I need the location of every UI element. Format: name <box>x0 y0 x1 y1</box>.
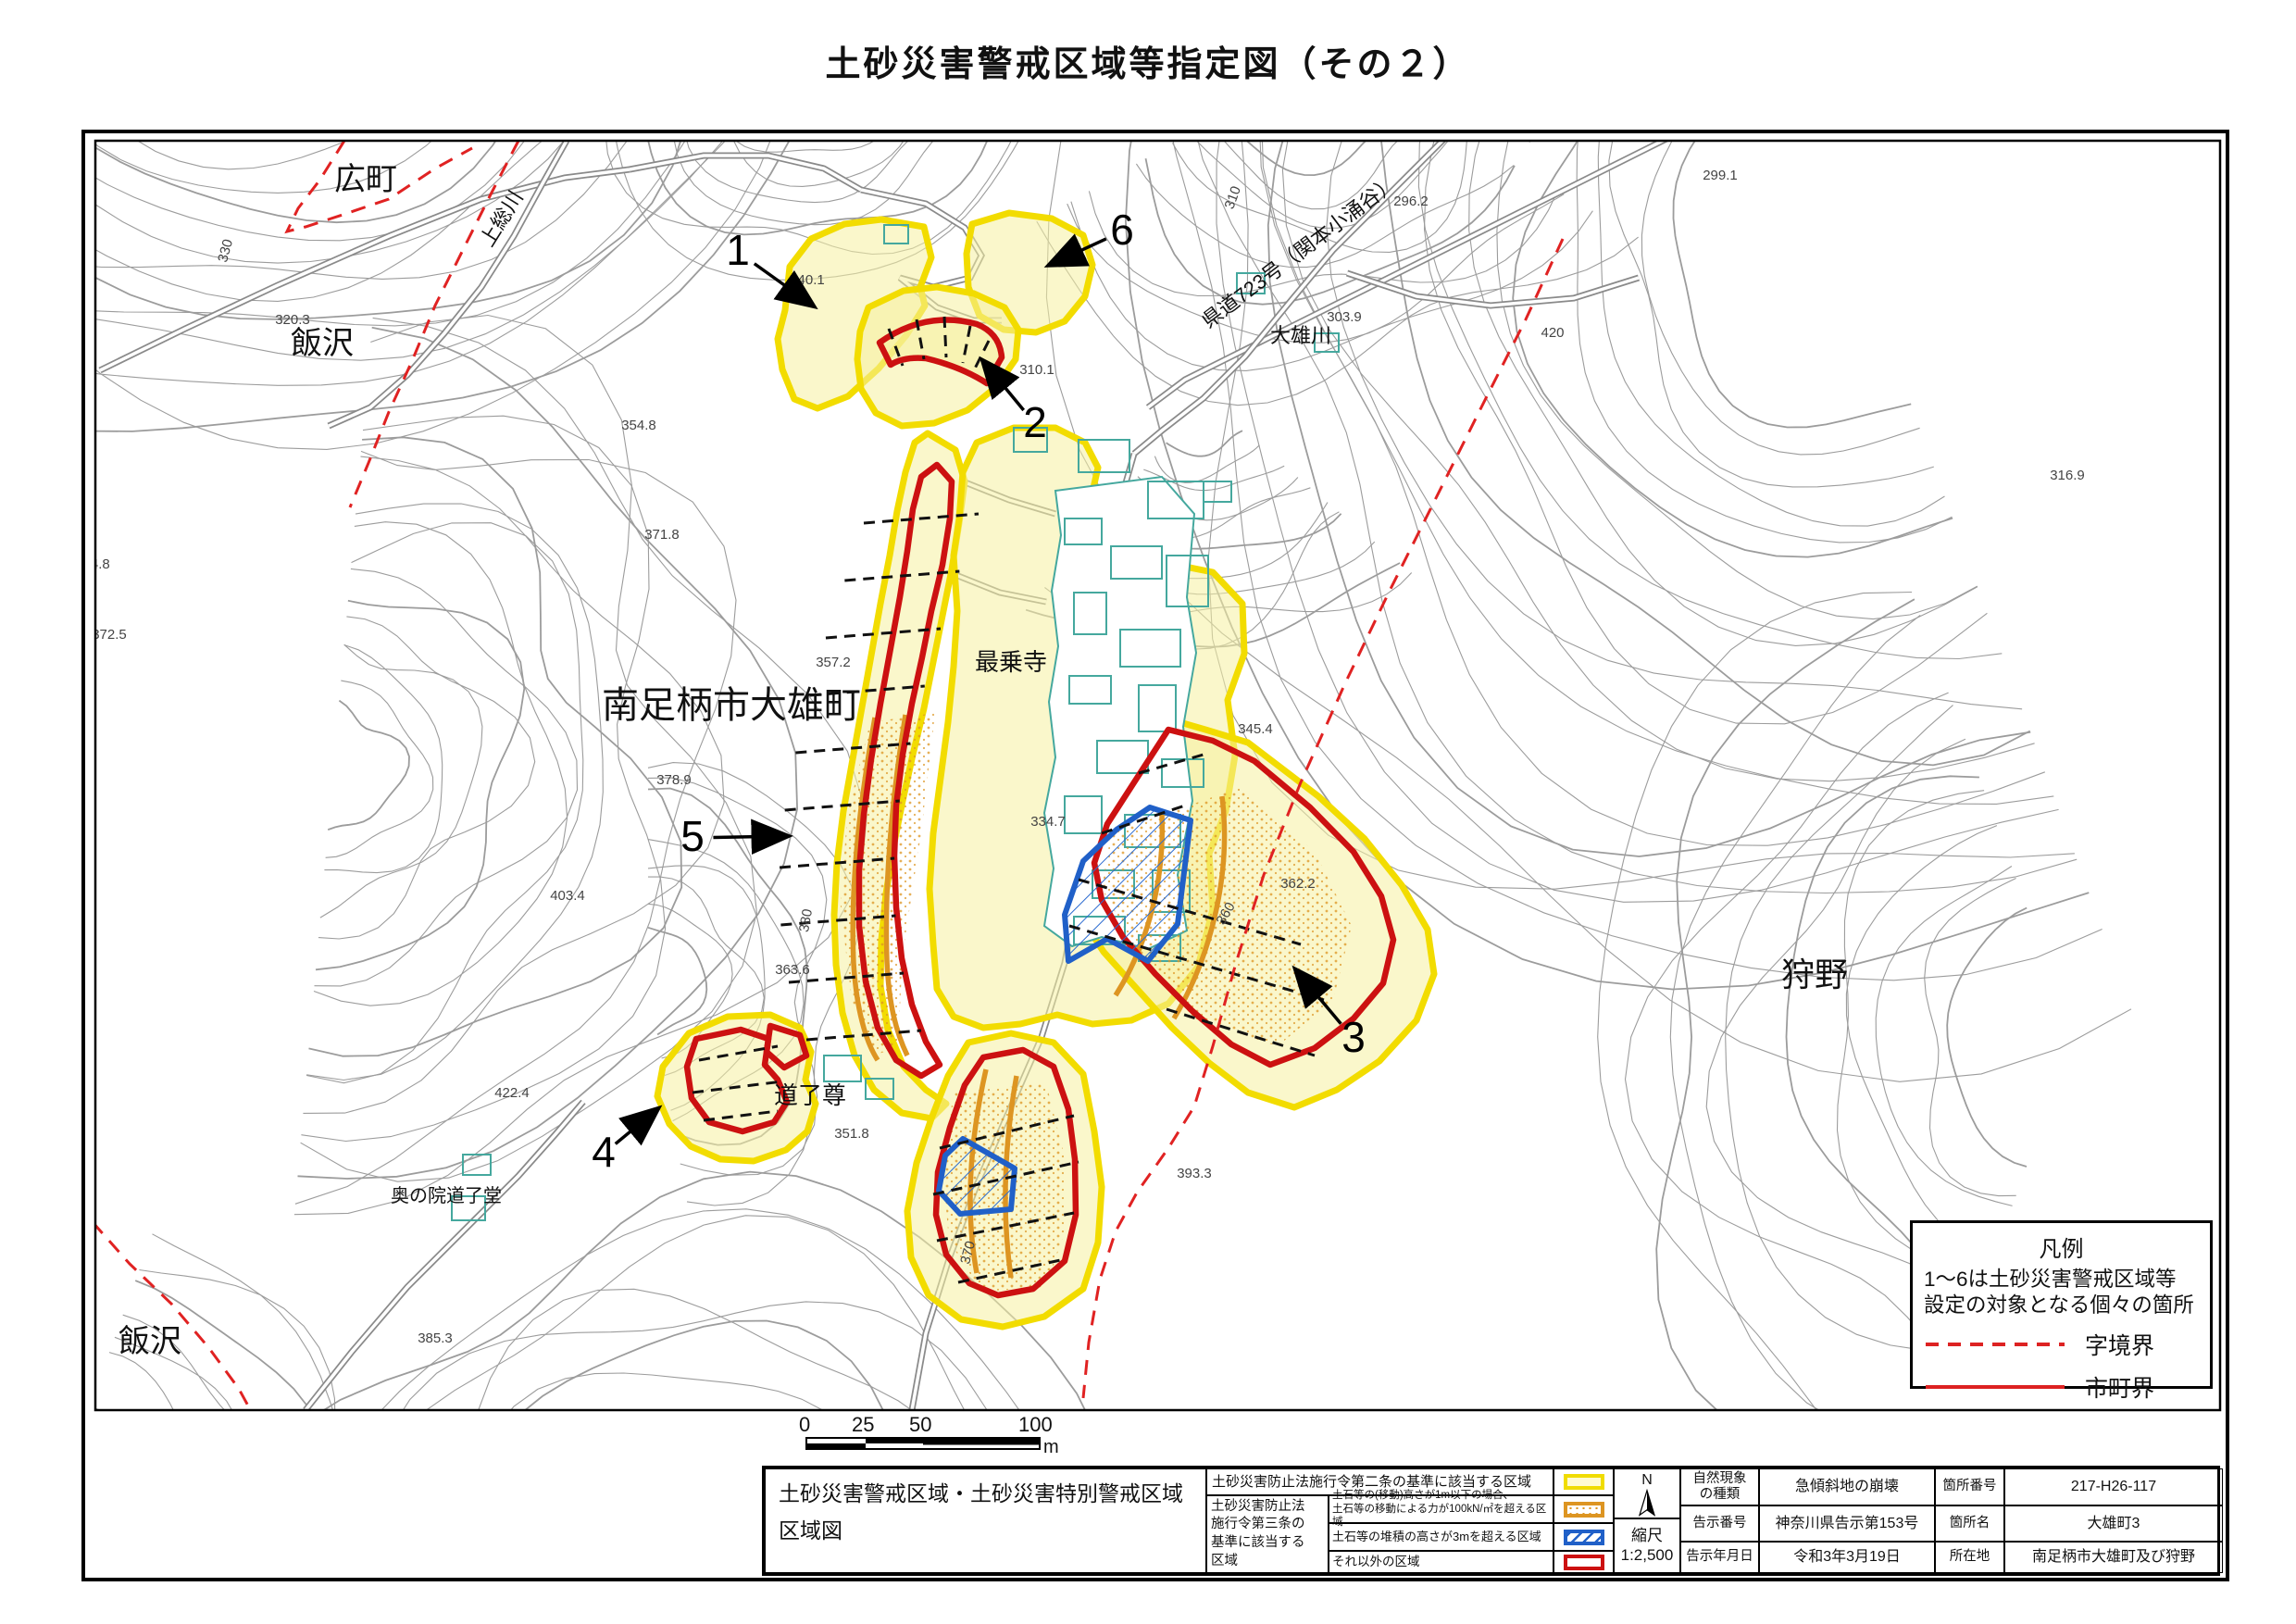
scale-bar: 0 25 50 100 m <box>792 1413 1088 1459</box>
legend-title: 凡例 <box>1913 1230 2210 1263</box>
scale-tick-0: 0 <box>799 1413 810 1437</box>
map-legend-box: 凡例 1～6は土砂災害警戒区域等 設定の対象となる個々の箇所 字境界 市町界 <box>1910 1220 2213 1389</box>
legend-item-shichokai: 市町界 <box>1926 1370 2197 1404</box>
swatch-yellow-zone <box>1554 1468 1614 1495</box>
scale-value: 1:2,500 <box>1621 1546 1674 1565</box>
sheet-info-table: 土砂災害警戒区域・土砂災害特別警戒区域 区域図 土砂災害防止法施行令第二条の基準… <box>762 1466 2220 1576</box>
swatch-orange-zone <box>1554 1495 1614 1523</box>
law3-row3-label: それ以外の区域 <box>1329 1551 1554 1573</box>
sheet-frame <box>81 130 2229 1581</box>
info-label-site-name: 箇所名 <box>1935 1505 2004 1542</box>
scale-tick-25: 25 <box>852 1413 874 1437</box>
north-arrow-icon <box>1631 1489 1663 1518</box>
legend-item-azakyokai: 字境界 <box>1926 1328 2197 1361</box>
info-value-notice-date: 令和3年3月19日 <box>1759 1542 1935 1573</box>
law3-row2-label: 土石等の堆積の高さが3mを超える区域 <box>1329 1523 1554 1551</box>
scale-unit: m <box>1043 1437 1059 1458</box>
elevation-label: 280 <box>1897 82 1920 98</box>
sheet-title: 土砂災害警戒区域・土砂災害特別警戒区域 区域図 <box>765 1468 1206 1573</box>
contour-line <box>68 0 501 112</box>
info-label-site-number: 箇所番号 <box>1935 1468 2004 1505</box>
contour-line <box>48 0 515 136</box>
scale-bar-graphic <box>805 1437 1041 1450</box>
contour-line <box>93 0 461 92</box>
scale-label: 縮尺 <box>1631 1527 1663 1545</box>
law3-header: 土砂災害防止法 施行令第三条の 基準に該当する 区域 <box>1206 1495 1329 1573</box>
scale-cell: 縮尺 1:2,500 <box>1614 1518 1680 1573</box>
swatch-red-zone <box>1554 1551 1614 1573</box>
north-label: N <box>1641 1471 1653 1489</box>
swatch-blue-zone <box>1554 1523 1614 1551</box>
elevation-label: 333.1 <box>1008 99 1043 115</box>
scale-tick-50: 50 <box>909 1413 931 1437</box>
elevation-label: 270 <box>2077 106 2100 122</box>
info-label-phenomenon: 自然現象 の種類 <box>1680 1468 1759 1505</box>
info-value-site-name: 大雄町3 <box>2004 1505 2223 1542</box>
legend-note: 1～6は土砂災害警戒区域等 設定の対象となる個々の箇所 <box>1924 1267 2201 1318</box>
dashed-line-sample <box>1926 1343 2065 1346</box>
info-label-notice-number: 告示番号 <box>1680 1505 1759 1542</box>
info-value-notice-number: 神奈川県告示第153号 <box>1759 1505 1935 1542</box>
info-label-location: 所在地 <box>1935 1542 2004 1573</box>
info-value-phenomenon: 急傾斜地の崩壊 <box>1759 1468 1935 1505</box>
solid-line-sample <box>1926 1385 2065 1389</box>
info-label-notice-date: 告示年月日 <box>1680 1542 1759 1573</box>
north-arrow-cell: N <box>1614 1468 1680 1518</box>
scale-tick-100: 100 <box>1018 1413 1053 1437</box>
info-value-site-number: 217-H26-117 <box>2004 1468 2223 1505</box>
info-value-location: 南足柄市大雄町及び狩野 <box>2004 1542 2223 1573</box>
law3-row1-label: 土石等の(移動)高さが1m以下の場合、 土石等の移動による力が100kN/㎡を超… <box>1329 1495 1554 1523</box>
